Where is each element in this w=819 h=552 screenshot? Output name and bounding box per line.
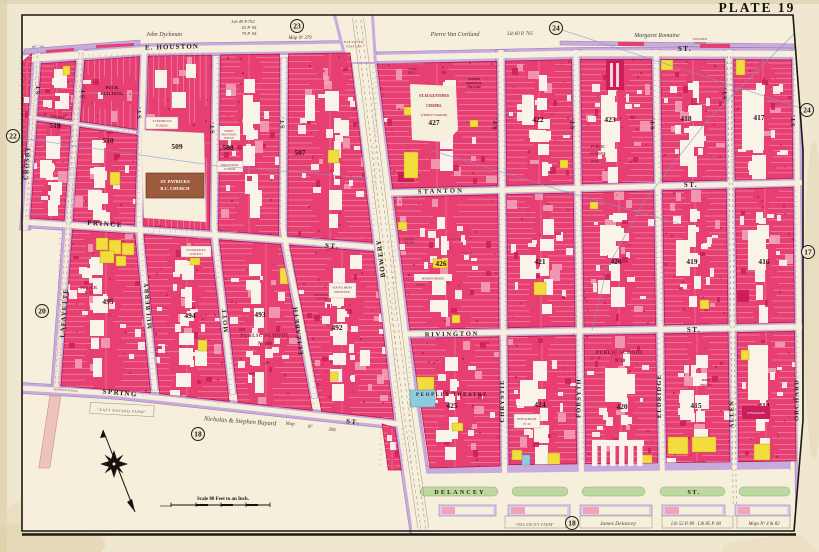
svg-text:BLDG.: BLDG. bbox=[408, 72, 416, 75]
svg-text:425: 425 bbox=[446, 401, 458, 410]
svg-text:ST.: ST. bbox=[346, 417, 361, 426]
svg-text:PROVISION: PROVISION bbox=[222, 134, 237, 137]
svg-text:CHAPEL: CHAPEL bbox=[426, 104, 442, 108]
svg-text:ST.: ST. bbox=[81, 85, 88, 98]
svg-text:426: 426 bbox=[435, 259, 447, 268]
svg-text:INSTITUTE: INSTITUTE bbox=[334, 290, 349, 294]
svg-text:“DELANCEY FARM”: “DELANCEY FARM” bbox=[515, 522, 554, 527]
svg-text:ST.: ST. bbox=[678, 45, 692, 53]
svg-text:24: 24 bbox=[803, 106, 811, 115]
svg-text:23: 23 bbox=[293, 22, 301, 31]
svg-text:Lib 52 P. 89 · Lib 85 P. 80: Lib 52 P. 89 · Lib 85 P. 80 bbox=[670, 522, 721, 527]
svg-text:492: 492 bbox=[331, 323, 343, 332]
svg-text:ST.: ST. bbox=[791, 114, 797, 127]
svg-text:419: 419 bbox=[686, 257, 698, 266]
svg-text:PUB.SCHOOL: PUB.SCHOOL bbox=[517, 417, 537, 421]
svg-text:PUBLIC: PUBLIC bbox=[591, 145, 606, 149]
svg-text:17: 17 bbox=[804, 248, 812, 257]
svg-text:519: 519 bbox=[49, 121, 61, 130]
svg-text:493: 493 bbox=[254, 310, 266, 319]
svg-text:PUB.SCH.: PUB.SCH. bbox=[80, 286, 97, 290]
svg-text:BUILDING: BUILDING bbox=[100, 91, 124, 96]
svg-text:BOWERY MISSION: BOWERY MISSION bbox=[422, 278, 444, 281]
svg-text:FORSYTH: FORSYTH bbox=[576, 378, 583, 418]
svg-text:507: 507 bbox=[294, 148, 306, 157]
svg-text:Maps Nº 4 & 82: Maps Nº 4 & 82 bbox=[747, 521, 780, 527]
svg-text:ST.PATRICKS: ST.PATRICKS bbox=[152, 119, 171, 123]
svg-text:Nº20: Nº20 bbox=[615, 358, 626, 364]
svg-text:SCHOOL: SCHOOL bbox=[156, 124, 169, 128]
svg-text:306: 306 bbox=[328, 428, 336, 434]
svg-text:422: 422 bbox=[532, 115, 544, 124]
svg-text:ST.: ST. bbox=[687, 326, 701, 334]
svg-text:63 P. 94: 63 P. 94 bbox=[242, 25, 258, 30]
svg-text:424: 424 bbox=[534, 400, 546, 409]
svg-text:ST.: ST. bbox=[494, 117, 500, 130]
svg-text:Nº 106: Nº 106 bbox=[258, 341, 273, 347]
svg-text:FERRIS: FERRIS bbox=[224, 130, 234, 133]
svg-text:STATION: STATION bbox=[346, 45, 362, 49]
svg-text:E. HOUSTON: E. HOUSTON bbox=[145, 42, 199, 51]
svg-text:HOUSE: HOUSE bbox=[224, 137, 234, 140]
svg-text:R.C. CHURCH: R.C. CHURCH bbox=[160, 186, 190, 191]
svg-text:18: 18 bbox=[194, 430, 202, 439]
svg-text:415: 415 bbox=[690, 401, 702, 410]
svg-text:STATION: STATION bbox=[694, 42, 705, 45]
svg-text:Nº 21: Nº 21 bbox=[85, 291, 94, 295]
svg-text:509: 509 bbox=[171, 142, 183, 151]
svg-text:CHRYSTIE: CHRYSTIE bbox=[499, 379, 506, 422]
svg-text:495: 495 bbox=[102, 297, 114, 306]
svg-text:510: 510 bbox=[102, 136, 114, 145]
svg-text:John Dyckman: John Dyckman bbox=[146, 32, 182, 38]
svg-text:ST.: ST. bbox=[279, 115, 286, 128]
svg-text:Lib 60 P. 705: Lib 60 P. 705 bbox=[506, 32, 533, 37]
svg-text:ST.AUGUSTINES: ST.AUGUSTINES bbox=[419, 94, 449, 98]
svg-text:PUBLIC SCHOOL: PUBLIC SCHOOL bbox=[596, 351, 644, 356]
svg-text:ST.: ST. bbox=[571, 117, 577, 130]
svg-text:Margaret Romaine: Margaret Romaine bbox=[633, 33, 680, 39]
svg-text:ST.: ST. bbox=[723, 87, 729, 100]
svg-text:PLATE 19: PLATE 19 bbox=[719, 0, 796, 15]
svg-text:SCHOOL): SCHOOL) bbox=[189, 252, 202, 256]
svg-text:ELEVATED: ELEVATED bbox=[344, 40, 364, 44]
svg-text:HOTEL: HOTEL bbox=[417, 284, 426, 287]
svg-text:416: 416 bbox=[758, 257, 770, 266]
svg-text:ST.: ST. bbox=[209, 120, 216, 133]
svg-text:ELEVATED: ELEVATED bbox=[693, 38, 707, 41]
svg-text:427: 427 bbox=[428, 118, 440, 127]
svg-text:ST.: ST. bbox=[36, 81, 43, 94]
svg-text:Nº91: Nº91 bbox=[591, 160, 599, 164]
svg-text:Map Nº 379: Map Nº 379 bbox=[287, 35, 312, 41]
svg-text:ST. PATRICKS: ST. PATRICKS bbox=[160, 179, 190, 184]
svg-text:YOUNG MENS: YOUNG MENS bbox=[332, 286, 352, 290]
svg-text:HOUSE: HOUSE bbox=[700, 383, 711, 387]
svg-text:THEATRE: THEATRE bbox=[403, 242, 415, 245]
svg-text:ELDRIDGE: ELDRIDGE bbox=[656, 374, 663, 418]
svg-text:494: 494 bbox=[184, 311, 196, 320]
svg-text:ST.: ST. bbox=[136, 105, 143, 118]
svg-text:DELANCEY: DELANCEY bbox=[434, 490, 485, 496]
svg-text:508: 508 bbox=[222, 143, 234, 152]
svg-text:ORCHARD: ORCHARD bbox=[794, 379, 801, 421]
svg-text:ST.: ST. bbox=[684, 181, 698, 189]
svg-text:FACTY: FACTY bbox=[317, 298, 325, 301]
svg-text:18: 18 bbox=[568, 519, 576, 528]
svg-text:James Delancey: James Delancey bbox=[600, 521, 636, 527]
svg-text:421: 421 bbox=[534, 257, 546, 266]
svg-text:SCHOOL: SCHOOL bbox=[590, 152, 607, 156]
svg-text:79 P. 94: 79 P. 94 bbox=[242, 31, 258, 36]
svg-text:Nº: Nº bbox=[306, 424, 313, 430]
svg-text:Pierre Van Cortland: Pierre Van Cortland bbox=[430, 32, 481, 38]
svg-text:ST.: ST. bbox=[688, 490, 701, 496]
svg-text:LOFTS: LOFTS bbox=[449, 238, 461, 241]
svg-text:SYNAGOGUE: SYNAGOGUE bbox=[747, 412, 765, 415]
svg-text:Lib 49 P.752: Lib 49 P.752 bbox=[230, 19, 255, 24]
svg-text:ALLEN: ALLEN bbox=[729, 400, 736, 428]
svg-text:RIVINGTON: RIVINGTON bbox=[425, 331, 479, 339]
svg-text:24: 24 bbox=[552, 24, 560, 33]
svg-text:418: 418 bbox=[680, 114, 692, 123]
svg-text:STANTON: STANTON bbox=[418, 187, 464, 195]
svg-text:PUCK: PUCK bbox=[105, 85, 118, 90]
svg-text:ST.: ST. bbox=[325, 242, 340, 251]
svg-text:(TRINITY PARISH): (TRINITY PARISH) bbox=[421, 113, 448, 117]
svg-text:Nº 23: Nº 23 bbox=[523, 422, 531, 426]
svg-text:22: 22 bbox=[9, 132, 17, 141]
svg-text:BATH: BATH bbox=[702, 378, 711, 382]
svg-text:20: 20 bbox=[38, 307, 46, 316]
svg-text:THEATRE: THEATRE bbox=[467, 85, 481, 89]
svg-text:ST.: ST. bbox=[651, 117, 657, 130]
svg-text:LOFTS: LOFTS bbox=[461, 252, 473, 255]
svg-text:423: 423 bbox=[604, 115, 616, 124]
svg-text:PUBLIC SCHOOL: PUBLIC SCHOOL bbox=[240, 334, 289, 339]
svg-text:Scale 80 Feet to an Inch.: Scale 80 Feet to an Inch. bbox=[197, 497, 250, 502]
svg-text:417: 417 bbox=[753, 113, 765, 122]
svg-text:PEOPLES THEATRE: PEOPLES THEATRE bbox=[416, 393, 488, 398]
svg-text:420: 420 bbox=[616, 402, 628, 411]
svg-text:Map: Map bbox=[284, 422, 295, 428]
